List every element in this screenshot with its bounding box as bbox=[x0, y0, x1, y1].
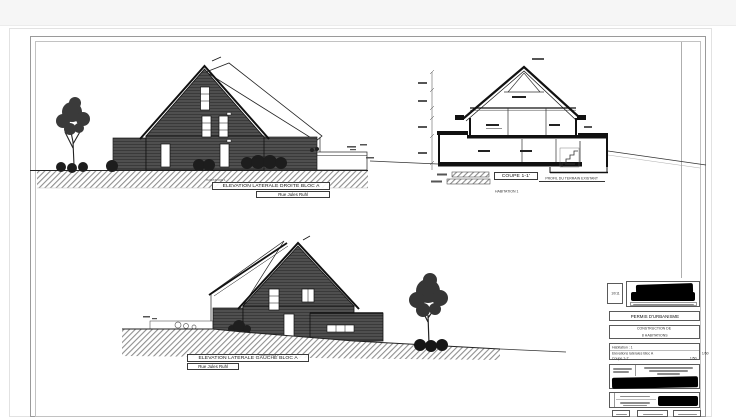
ridge-detail bbox=[303, 236, 310, 240]
owner-box bbox=[609, 392, 700, 408]
logo-box bbox=[626, 281, 700, 307]
tree-canopy bbox=[409, 273, 448, 317]
bushes bbox=[414, 339, 448, 352]
band-window bbox=[327, 325, 354, 332]
terrace-slab-right bbox=[578, 133, 608, 139]
elevation-droite-street: Rue Jules Ruhl bbox=[256, 191, 330, 198]
level-markers bbox=[347, 144, 367, 150]
text-illegible bbox=[613, 371, 629, 373]
owner-cell-bottom bbox=[616, 401, 656, 407]
terrain-secondary-line bbox=[608, 155, 700, 168]
door bbox=[161, 144, 170, 167]
drawing-list-row: Coupe 1-1' 1/50 bbox=[610, 356, 699, 361]
project-box: CONSTRUCTION DE 8 HABITATIONS bbox=[609, 325, 700, 339]
text-illegible bbox=[623, 405, 647, 407]
window bbox=[219, 116, 228, 137]
shrub bbox=[310, 148, 314, 152]
facade-marker bbox=[227, 113, 231, 116]
ground-slab bbox=[438, 162, 582, 167]
architect-left-cell bbox=[610, 365, 636, 376]
logo-redacted bbox=[631, 292, 695, 301]
shrub bbox=[315, 147, 319, 151]
text-illegible bbox=[613, 368, 632, 370]
tree-canopy bbox=[56, 97, 90, 135]
owner-side-strip bbox=[610, 393, 615, 407]
legend-text bbox=[431, 181, 442, 183]
terrain-profile-label: PROFIL DU TERRAIN EXISTANT bbox=[539, 176, 605, 182]
elevation-gauche-drawing bbox=[122, 236, 566, 360]
text-illegible bbox=[678, 414, 697, 416]
architect-right-cell bbox=[637, 365, 700, 376]
habitation-label: Habitation : 1 bbox=[612, 346, 633, 350]
coupe-title: COUPE 1-1' bbox=[494, 172, 538, 180]
street-label: Rue Jules Ruhl bbox=[198, 364, 228, 369]
hatch-legend-bar bbox=[452, 172, 489, 177]
side-wall-left bbox=[113, 138, 146, 170]
footer-box-right bbox=[673, 410, 701, 417]
text-illegible bbox=[644, 367, 693, 369]
gutter bbox=[577, 115, 586, 120]
balcony-slab bbox=[437, 131, 468, 135]
project-line1: CONSTRUCTION DE bbox=[637, 327, 671, 331]
text-illegible bbox=[657, 373, 680, 375]
text-illegible bbox=[620, 402, 650, 404]
footer-box-middle bbox=[637, 410, 668, 417]
door bbox=[284, 314, 294, 337]
coupe-drawing bbox=[366, 58, 706, 184]
sheet-number: 10/11 bbox=[611, 292, 620, 296]
logo-caption-box bbox=[630, 302, 697, 306]
street-label: Rue Jules Ruhl bbox=[278, 192, 308, 197]
coupe-subtitle: HABITATION 1 bbox=[495, 180, 542, 198]
window bbox=[302, 289, 314, 302]
item1-scale: 1/50 bbox=[701, 352, 708, 356]
coupe-title-text: COUPE 1-1' bbox=[502, 173, 530, 179]
item2-scale: 1/50 bbox=[690, 357, 697, 361]
architect-box bbox=[609, 364, 700, 389]
window bbox=[202, 116, 211, 137]
room-labels bbox=[478, 96, 575, 165]
permit-title-box: PERMIS D'URBANISME bbox=[609, 311, 700, 321]
floor-slab bbox=[467, 135, 579, 139]
door bbox=[220, 144, 229, 167]
window-gable bbox=[201, 87, 210, 110]
dimension-line-left bbox=[430, 70, 434, 170]
ridge-detail bbox=[212, 57, 221, 61]
architect-redacted bbox=[612, 376, 698, 388]
item2-label: Coupe 1-1' bbox=[612, 357, 629, 361]
item1-label: Elévations latérales Bloc A bbox=[612, 352, 653, 356]
owner-redacted bbox=[658, 396, 698, 406]
elevation-droite-drawing bbox=[30, 57, 368, 188]
hatch-legend-bar bbox=[447, 179, 490, 184]
level-marker bbox=[366, 157, 374, 159]
sheet-number-box: 10/11 bbox=[607, 283, 623, 304]
project-line2: 8 HABITATIONS bbox=[642, 334, 668, 338]
drawing-list-box: Habitation : 1 Elévations latérales Bloc… bbox=[609, 343, 700, 360]
caption-text-illegible bbox=[633, 304, 694, 306]
text-illegible bbox=[616, 414, 627, 416]
legend-text bbox=[437, 174, 447, 176]
level-marker bbox=[152, 318, 157, 319]
text-illegible bbox=[643, 414, 663, 416]
terrain-extension bbox=[500, 349, 566, 352]
text-illegible bbox=[649, 370, 688, 372]
garage-right bbox=[317, 152, 367, 170]
terrain-left-line bbox=[370, 161, 438, 164]
footer-box-left bbox=[612, 410, 630, 417]
terrain-profile-line bbox=[608, 151, 706, 165]
facade-marker bbox=[227, 140, 231, 143]
elevation-droite-ground-label: HABITATION 1 bbox=[206, 169, 253, 187]
elevation-gauche-ground-label: HABITATION 1 bbox=[259, 344, 306, 362]
elevation-gauche-street: Rue Jules Ruhl bbox=[187, 363, 239, 370]
owner-cell-top bbox=[616, 393, 656, 400]
level-marker bbox=[143, 316, 150, 318]
text-illegible bbox=[620, 396, 650, 398]
gutter bbox=[455, 115, 464, 120]
window bbox=[269, 289, 279, 310]
permit-title: PERMIS D'URBANISME bbox=[630, 314, 678, 319]
